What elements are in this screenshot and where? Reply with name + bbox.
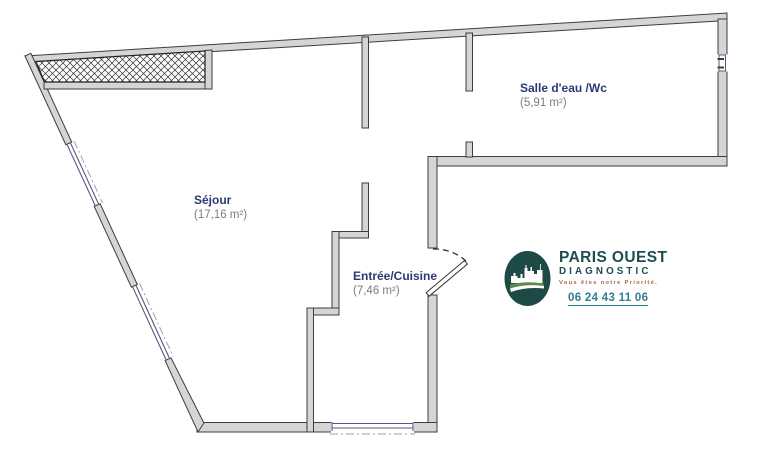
- windows: [67, 55, 728, 435]
- floor-plan: Séjour (17,16 m²) Salle d'eau /Wc (5,91 …: [0, 0, 772, 460]
- room-label-entree-cuisine: Entrée/Cuisine (7,46 m²): [353, 269, 437, 298]
- window-facade-lower: [133, 285, 170, 360]
- logo-tagline: Vous êtes notre Priorité.: [559, 280, 658, 286]
- logo-text-block: PARIS OUEST DIAGNOSTIC Vous êtes notre P…: [559, 250, 667, 306]
- window-right-wall: [717, 55, 728, 72]
- room-name: Salle d'eau /Wc: [520, 81, 607, 96]
- room-name: Séjour: [194, 193, 247, 208]
- phone-number-link[interactable]: 06 24 43 11 06: [568, 292, 648, 306]
- room-area: (17,16 m²): [194, 208, 247, 222]
- door-swing-arc: [433, 249, 466, 261]
- room-area: (5,91 m²): [520, 96, 607, 110]
- room-area: (7,46 m²): [353, 284, 437, 298]
- window-axis-line: [74, 141, 102, 203]
- room-name: Entrée/Cuisine: [353, 269, 437, 284]
- floor-plan-drawing: [0, 0, 772, 460]
- company-logo: PARIS OUEST DIAGNOSTIC Vous êtes notre P…: [504, 250, 667, 307]
- logo-brand-line2: DIAGNOSTIC: [559, 267, 652, 278]
- window-bottom: [330, 422, 415, 435]
- logo-brand-line1: PARIS OUEST: [559, 250, 667, 266]
- window-axis-line: [140, 283, 174, 356]
- room-label-sejour: Séjour (17,16 m²): [194, 193, 247, 222]
- room-label-salle-deau-wc: Salle d'eau /Wc (5,91 m²): [520, 81, 607, 110]
- window-facade-upper: [67, 143, 99, 206]
- city-skyline-icon: [504, 250, 551, 307]
